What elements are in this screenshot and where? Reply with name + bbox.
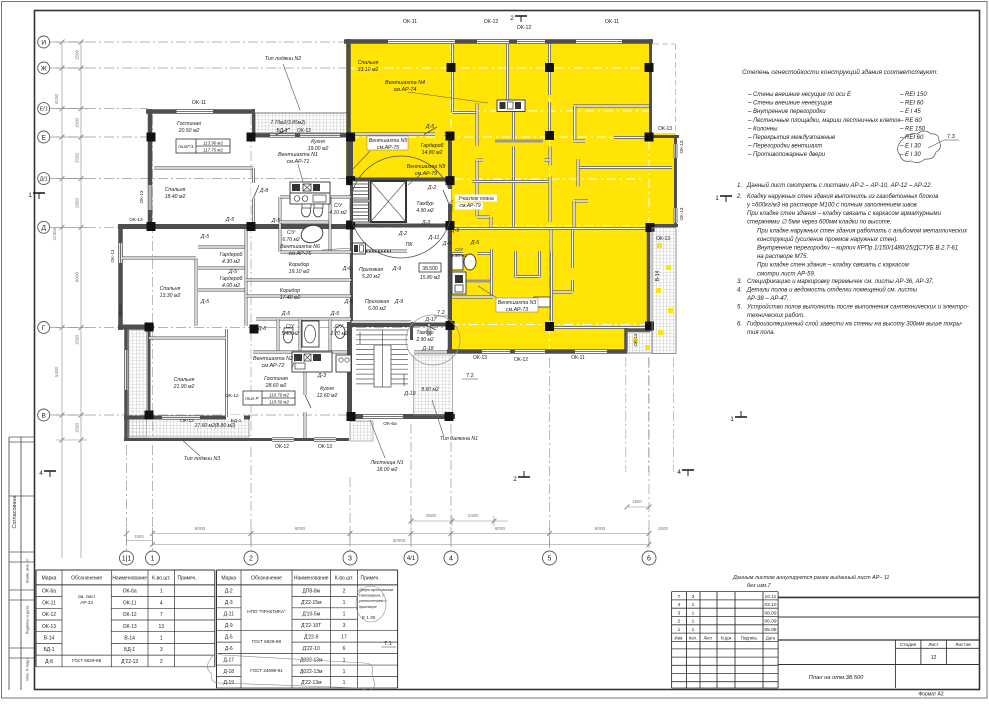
svg-text:ОК-11: ОК-11 [403, 19, 417, 25]
svg-text:6000: 6000 [495, 526, 506, 531]
svg-text:4: 4 [449, 556, 453, 563]
svg-text:Спальня: Спальня [174, 377, 195, 383]
svg-text:7: 7 [160, 612, 163, 618]
svg-text:– E I 30: – E I 30 [899, 152, 921, 158]
svg-text:5.00 м2: 5.00 м2 [368, 306, 386, 312]
svg-text:3: 3 [678, 610, 681, 616]
svg-text:Д-6: Д-6 [344, 299, 353, 305]
svg-text:28.60 м2: 28.60 м2 [265, 383, 287, 389]
svg-text:Примеч.: Примеч. [178, 576, 197, 582]
svg-text:1: 1 [692, 602, 695, 608]
svg-text:АР-38 – АР-47.: АР-38 – АР-47. [746, 296, 789, 302]
svg-text:ОК-12: ОК-12 [118, 303, 123, 316]
svg-text:– Стены внешние несущие по ос: – Стены внешние несущие по оси Е [747, 92, 852, 98]
svg-text:тия пола.: тия пола. [747, 330, 775, 336]
svg-text:С/У: С/У [455, 247, 464, 253]
svg-text:Ж: Ж [41, 65, 47, 72]
svg-text:Участок плана: Участок плана [458, 196, 494, 202]
svg-text:Е 1 30: Е 1 30 [362, 615, 376, 620]
svg-text:Стадия: Стадия [900, 642, 917, 648]
svg-text:БД-1: БД-1 [231, 418, 242, 424]
svg-text:2850: 2850 [75, 197, 80, 208]
svg-text:ОК-13: ОК-13 [679, 207, 684, 220]
svg-text:Спецификацию и маркировку пере: Спецификацию и маркировку перемычек см. … [747, 279, 934, 285]
svg-text:Тип лоджии N2: Тип лоджии N2 [265, 56, 301, 62]
svg-text:4: 4 [160, 600, 163, 606]
svg-text:ОК-6а: ОК-6а [383, 421, 397, 427]
svg-text:6: 6 [343, 646, 346, 652]
svg-text:1500: 1500 [75, 117, 80, 128]
svg-text:2550: 2550 [75, 152, 80, 163]
svg-text:4: 4 [39, 470, 43, 477]
svg-text:Лист: Лист [928, 642, 939, 648]
svg-text:Д-18: Д-18 [421, 346, 433, 352]
svg-text:1: 1 [28, 192, 32, 199]
svg-text:Детали полов и ведомость отдел: Детали полов и ведомость отделки помещен… [746, 287, 918, 294]
svg-text:технических работ.: технических работ. [747, 313, 805, 319]
svg-text:4.10 м2: 4.10 м2 [329, 210, 347, 216]
svg-text:1.: 1. [737, 183, 742, 189]
svg-text:18.00 м2: 18.00 м2 [377, 467, 398, 473]
svg-text:Гардероб: Гардероб [220, 276, 244, 282]
svg-text:Д-11: Д-11 [224, 612, 234, 618]
svg-text:Д'22-15м: Д'22-15м [301, 600, 322, 606]
svg-text:С/У: С/У [286, 324, 295, 330]
svg-text:Данный лист смотреть с листами: Данный лист смотреть с листами АР-2 – АР… [746, 182, 932, 189]
svg-text:– Лестничные площадки, марши л: – Лестничные площадки, марши лестничных … [747, 118, 902, 124]
svg-text:Лестница N1: Лестница N1 [369, 460, 403, 466]
svg-text:Д-5: Д-5 [425, 124, 434, 130]
svg-text:Формат А2: Формат А2 [918, 692, 943, 698]
svg-text:Д-17: Д-17 [424, 317, 437, 323]
svg-text:13.30 м2: 13.30 м2 [160, 293, 181, 299]
svg-text:05.08: 05.08 [764, 627, 776, 633]
svg-text:7.2: 7.2 [466, 373, 474, 379]
svg-text:119.50 м2: 119.50 м2 [269, 400, 289, 405]
svg-text:7.70м2(3.85м2): 7.70м2(3.85м2) [270, 120, 306, 126]
svg-text:см.АР-76: см.АР-76 [289, 251, 312, 257]
svg-text:ОК-11: ОК-11 [571, 355, 585, 361]
svg-text:ДП8-8м: ДП8-8м [302, 589, 320, 595]
svg-text:Е/1: Е/1 [40, 106, 48, 112]
svg-text:– Перекрытия междуэтажные: – Перекрытия междуэтажные [747, 135, 836, 141]
svg-text:Степень огнестойкости конструк: Степень огнестойкости конструкций здания… [742, 68, 938, 76]
svg-text:1: 1 [692, 610, 695, 616]
svg-text:притворе: притворе [359, 605, 377, 609]
svg-text:08.09: 08.09 [764, 610, 776, 616]
svg-text:ОК-6а: ОК-6а [123, 589, 137, 595]
svg-text:5.20 м2: 5.20 м2 [362, 274, 380, 280]
svg-text:21.90 м2: 21.90 м2 [173, 384, 195, 390]
svg-text:Д-5: Д-5 [330, 311, 339, 317]
svg-text:Взам. инв. N: Взам. инв. N [25, 559, 30, 582]
svg-text:Инв. N подл.: Инв. N подл. [25, 657, 30, 681]
svg-text:уплотнением в: уплотнением в [358, 599, 387, 603]
svg-text:Д/1: Д/1 [40, 176, 48, 182]
svg-text:12: 12 [931, 655, 937, 661]
svg-text:ОК-12: ОК-12 [180, 418, 194, 424]
svg-text:6.70 м2: 6.70 м2 [282, 237, 300, 243]
svg-text:ОК-12: ОК-12 [42, 612, 56, 618]
svg-text:Обозначение: Обозначение [251, 576, 282, 582]
svg-text:03.10: 03.10 [764, 602, 776, 608]
svg-text:Наименование: Наименование [112, 576, 147, 582]
svg-text:Д-2: Д-2 [398, 231, 407, 237]
svg-text:Прихожая: Прихожая [359, 267, 383, 273]
svg-text:7.3: 7.3 [947, 134, 955, 140]
svg-text:1: 1 [343, 612, 346, 618]
svg-text:Гостиная: Гостиная [264, 376, 288, 382]
svg-text:При кладке наружных стен здани: При кладке наружных стен здания работать… [757, 229, 968, 235]
svg-text:5400: 5400 [54, 366, 59, 377]
svg-text:– Стены внешние ненесущие: – Стены внешние ненесущие [747, 101, 833, 107]
svg-text:ОК-11: ОК-11 [605, 19, 619, 25]
svg-text:Коридор: Коридор [289, 262, 309, 268]
svg-text:При кладке стен здания – кла: При кладке стен здания – кладку связать … [747, 211, 942, 217]
svg-text:Кухня: Кухня [311, 139, 325, 145]
svg-text:БД-1: БД-1 [124, 647, 135, 653]
svg-text:Гардероб: Гардероб [421, 143, 445, 149]
svg-text:1500: 1500 [134, 534, 144, 539]
svg-text:ОК-12: ОК-12 [123, 612, 137, 618]
svg-text:Наименование: Наименование [294, 576, 329, 582]
svg-text:2: 2 [513, 476, 517, 483]
svg-text:Лист: Лист [703, 636, 712, 641]
svg-text:ОК-11: ОК-11 [123, 600, 137, 606]
svg-text:ОК-12: ОК-12 [275, 444, 289, 450]
svg-text:НПО "ПРАКТИКА": НПО "ПРАКТИКА" [247, 609, 286, 614]
svg-text:3600: 3600 [426, 513, 437, 518]
svg-text:ОК-12: ОК-12 [297, 128, 311, 134]
svg-text:3: 3 [348, 556, 352, 563]
svg-text:Д-3: Д-3 [317, 373, 326, 379]
svg-text:33.10 м2: 33.10 м2 [358, 67, 379, 73]
svg-text:Листов: Листов [955, 642, 971, 648]
svg-text:см.АР-74: см.АР-74 [394, 87, 417, 93]
svg-text:Данным листом аннулируется ран: Данным листом аннулируется ранее выданны… [732, 574, 889, 581]
svg-text:смотри лист АР-59.: смотри лист АР-59. [757, 271, 815, 277]
svg-text:Д-2: Д-2 [427, 185, 436, 191]
svg-text:6000: 6000 [295, 526, 306, 531]
svg-text:ОК-12: ОК-12 [517, 25, 532, 31]
svg-text:Тип лоджии N3: Тип лоджии N3 [184, 456, 220, 462]
svg-text:Д022-13м: Д022-13м [300, 669, 323, 675]
svg-text:7.2: 7.2 [437, 310, 445, 316]
svg-text:– E I 45: – E I 45 [899, 109, 921, 115]
svg-text:2400: 2400 [468, 513, 479, 518]
svg-text:стержнями ∅ 5мм через 600мм: стержнями ∅ 5мм через 600мм кладки по вы… [747, 219, 892, 226]
svg-text:Д-8: Д-8 [259, 188, 268, 194]
svg-text:5.40 м2: 5.40 м2 [281, 331, 299, 337]
svg-text:ОК-13: ОК-13 [318, 444, 332, 450]
svg-text:Д-2: Д-2 [225, 589, 233, 595]
svg-text:Гидроизоляционный слой завести: Гидроизоляционный слой завести на стены … [747, 321, 963, 328]
svg-text:1500: 1500 [75, 422, 80, 433]
svg-text:6000: 6000 [195, 526, 206, 531]
svg-text:ОК-13: ОК-13 [110, 249, 115, 262]
svg-text:ОК-13: ОК-13 [658, 126, 672, 132]
svg-text:ОК-13: ОК-13 [139, 190, 144, 203]
svg-text:Подпись и дата: Подпись и дата [25, 605, 30, 635]
svg-text:1: 1 [151, 556, 155, 563]
svg-text:2: 2 [678, 619, 681, 625]
svg-text:2: 2 [249, 556, 253, 563]
svg-text:– Перегородки вентшахт: – Перегородки вентшахт [747, 144, 822, 150]
svg-text:1500: 1500 [75, 334, 80, 345]
svg-text:типГ/1: типГ/1 [178, 144, 194, 149]
svg-text:10.11: 10.11 [765, 594, 777, 600]
svg-text:АР-32: АР-32 [80, 600, 93, 605]
svg-text:Вентшахта N5: Вентшахта N5 [369, 138, 408, 144]
svg-text:ОК-13: ОК-13 [656, 236, 670, 242]
svg-text:18.40 м2: 18.40 м2 [165, 194, 186, 200]
svg-text:1500: 1500 [658, 526, 669, 531]
svg-text:ОК-13: ОК-13 [473, 355, 487, 361]
svg-text:4200: 4200 [54, 93, 59, 104]
svg-text:Д'22-10: Д'22-10 [303, 646, 320, 652]
svg-text:С/У: С/У [335, 324, 344, 330]
svg-text:ОК-13: ОК-13 [633, 333, 638, 346]
svg-text:110.70 м2: 110.70 м2 [269, 393, 289, 398]
svg-text:γ =600кг/м3 на растворе М100 с: γ =600кг/м3 на растворе М100 с полным за… [747, 203, 917, 209]
svg-text:Д: Д [41, 225, 46, 232]
svg-text:3: 3 [343, 623, 346, 629]
svg-text:17.40 м2: 17.40 м2 [280, 295, 301, 301]
svg-text:Тамбур: Тамбур [416, 201, 433, 207]
svg-text:см. лист: см. лист [78, 594, 97, 599]
svg-text:Д'22-13м: Д'22-13м [301, 680, 322, 686]
svg-text:Д-6: Д-6 [225, 646, 233, 652]
svg-text:Прихожая: Прихожая [365, 299, 389, 305]
svg-text:Д-9: Д-9 [225, 623, 233, 629]
svg-text:1: 1 [343, 669, 346, 675]
svg-text:1500: 1500 [632, 499, 642, 504]
svg-text:Вентшахта N4: Вентшахта N4 [385, 80, 425, 86]
svg-text:Вентшахта N9: Вентшахта N9 [407, 164, 446, 170]
svg-text:ПК: ПК [406, 242, 414, 248]
svg-text:см.АР-75: см.АР-75 [377, 145, 399, 151]
svg-text:19.10 м2: 19.10 м2 [289, 269, 310, 275]
svg-text:5.: 5. [737, 305, 742, 311]
svg-text:Д-8: Д-8 [45, 659, 53, 665]
svg-text:Согласована: Согласована [12, 495, 18, 529]
svg-text:ОК-12: ОК-12 [225, 393, 239, 399]
svg-text:3: 3 [692, 594, 695, 600]
svg-text:Изм.: Изм. [675, 636, 684, 641]
svg-text:1: 1 [730, 416, 734, 423]
svg-text:4/1: 4/1 [407, 556, 416, 562]
svg-text:Д-5: Д-5 [200, 234, 209, 240]
svg-text:см.АР-71: см.АР-71 [287, 159, 310, 165]
svg-text:Спальня: Спальня [165, 187, 186, 193]
svg-text:на растворе М75.: на растворе М75. [757, 254, 808, 260]
svg-text:см.АР-79: см.АР-79 [415, 171, 437, 177]
svg-text:3: 3 [160, 647, 163, 653]
svg-text:2.70 м2: 2.70 м2 [329, 331, 348, 337]
svg-text:БД-1: БД-1 [276, 128, 287, 134]
svg-text:Д-9: Д-9 [394, 299, 403, 305]
svg-text:6: 6 [647, 556, 651, 563]
svg-text:3.30 м2: 3.30 м2 [451, 253, 468, 259]
svg-text:Марка: Марка [221, 576, 236, 582]
svg-text:8.60 м2: 8.60 м2 [421, 387, 439, 393]
svg-text:N док: N док [721, 636, 732, 641]
svg-text:6000: 6000 [75, 271, 80, 282]
svg-text:4.00 м2: 4.00 м2 [222, 283, 240, 289]
svg-text:113.90 м2: 113.90 м2 [203, 141, 223, 146]
svg-text:Д-9: Д-9 [442, 241, 451, 247]
svg-text:Внутренние перегородки – ки: Внутренние перегородки – кирпич КРПр 1/1… [757, 246, 958, 252]
svg-text:– E I 30: – E I 30 [899, 144, 921, 150]
svg-text:К-во.шт.: К-во.шт. [152, 576, 170, 582]
svg-text:Тип балкона N1: Тип балкона N1 [440, 436, 478, 442]
svg-text:Вентшахта N3: Вентшахта N3 [498, 300, 537, 306]
svg-text:см.АР-72: см.АР-72 [262, 363, 285, 369]
svg-text:2.: 2. [736, 194, 742, 200]
svg-text:К-во.шт.: К-во.шт. [335, 576, 353, 582]
svg-text:4: 4 [678, 602, 681, 608]
svg-text:06.09: 06.09 [764, 619, 776, 625]
svg-text:Кол.: Кол. [689, 636, 697, 641]
svg-text:13: 13 [158, 624, 164, 630]
svg-text:1: 1 [343, 680, 346, 686]
svg-text:В-14: В-14 [124, 636, 135, 642]
svg-text:– REI 150: – REI 150 [899, 92, 927, 98]
svg-text:С/У: С/У [334, 203, 343, 209]
svg-text:Г: Г [42, 325, 46, 332]
svg-text:Д'10-5м: Д'10-5м [302, 612, 320, 618]
svg-text:В-14: В-14 [44, 636, 55, 642]
svg-text:Д-18: Д-18 [223, 669, 234, 675]
svg-text:Примеч.: Примеч. [361, 576, 380, 582]
svg-text:Е: Е [42, 134, 47, 141]
svg-text:1: 1 [692, 627, 695, 633]
svg-text:ОК-12: ОК-12 [514, 357, 528, 363]
svg-text:1: 1 [343, 600, 346, 606]
svg-text:Д-5: Д-5 [271, 218, 280, 224]
svg-text:Д-3: Д-3 [225, 600, 233, 606]
svg-text:Гостиная: Гостиная [177, 121, 201, 127]
svg-text:22350: 22350 [52, 227, 57, 240]
svg-text:И: И [41, 39, 46, 46]
svg-text:Тамбур: Тамбур [416, 330, 433, 336]
svg-text:7: 7 [678, 594, 681, 600]
svg-text:ОК-13: ОК-13 [42, 624, 56, 630]
svg-text:3.: 3. [737, 279, 742, 285]
svg-text:Кухня: Кухня [320, 386, 334, 392]
svg-text:ОК-12: ОК-12 [484, 19, 499, 25]
svg-text:Гардероб: Гардероб [220, 252, 244, 258]
svg-text:4.30 м2: 4.30 м2 [222, 259, 240, 265]
svg-text:тип Р: тип Р [245, 396, 259, 401]
svg-text:117.75 м2: 117.75 м2 [203, 148, 223, 153]
svg-text:Д-3: Д-3 [421, 220, 430, 226]
svg-text:Д'22-10Т: Д'22-10Т [301, 623, 321, 629]
svg-text:конструкций (усиление проемов: конструкций (усиление проемов наружных с… [757, 236, 898, 243]
svg-text:Д-5: Д-5 [225, 634, 233, 640]
svg-text:– Внутренние перегородки: – Внутренние перегородки [747, 109, 826, 115]
svg-text:ОК-11: ОК-11 [42, 600, 56, 606]
svg-text:– REI 60: – REI 60 [899, 135, 924, 141]
svg-text:– Противопожарные двери: – Противопожарные двери [747, 152, 826, 158]
svg-text:– Колонны: – Колонны [747, 126, 778, 132]
svg-text:Д-17: Д-17 [223, 657, 234, 663]
svg-text:14.80 м2: 14.80 м2 [422, 150, 443, 156]
svg-text:1: 1 [160, 636, 163, 642]
svg-text:Д-11: Д-11 [428, 235, 440, 241]
svg-text:1: 1 [692, 619, 695, 625]
svg-text:17: 17 [341, 634, 347, 640]
svg-text:Спальня: Спальня [160, 286, 181, 292]
svg-text:Вентшахта N2: Вентшахта N2 [253, 356, 293, 362]
svg-text:План на отм.38.500: План на отм.38.500 [809, 675, 865, 681]
svg-text:ОК-13: ОК-13 [679, 140, 684, 153]
svg-text:Д-6: Д-6 [342, 266, 351, 272]
svg-text:Д-5: Д-5 [281, 311, 290, 317]
svg-text:4.90 м2: 4.90 м2 [416, 208, 434, 214]
svg-text:17.60 м2(8.80 м2): 17.60 м2(8.80 м2) [195, 423, 236, 429]
svg-text:БД-1: БД-1 [43, 647, 54, 653]
svg-text:Коридор: Коридор [280, 288, 300, 294]
svg-text:38.500: 38.500 [422, 266, 438, 272]
svg-text:Спальня: Спальня [358, 60, 379, 66]
svg-text:1: 1 [343, 657, 346, 663]
svg-text:Кладку наружных стен здания вы: Кладку наружных стен здания выполнить из… [747, 194, 938, 200]
svg-text:2: 2 [160, 659, 163, 665]
svg-text:Д-9: Д-9 [450, 228, 459, 234]
svg-text:Д'22-9: Д'22-9 [304, 634, 319, 640]
svg-text:30000: 30000 [393, 538, 406, 543]
svg-text:ОК-13: ОК-13 [129, 217, 143, 223]
svg-text:4: 4 [677, 469, 681, 476]
svg-text:Обозначение: Обозначение [71, 576, 102, 582]
svg-text:Дата: Дата [766, 636, 776, 641]
svg-text:– RE 60: – RE 60 [899, 118, 922, 124]
svg-text:6.: 6. [737, 322, 742, 328]
svg-text:без изм.7: без изм.7 [747, 583, 772, 589]
svg-text:ГОсТ 6629-88: ГОсТ 6629-88 [72, 658, 101, 663]
svg-text:12.60 м2: 12.60 м2 [317, 393, 338, 399]
svg-text:4.: 4. [737, 288, 742, 294]
svg-text:Д-5: Д-5 [228, 269, 237, 275]
svg-text:Д-5: Д-5 [470, 240, 479, 246]
svg-text:1|1: 1|1 [122, 556, 132, 563]
svg-text:Д-5: Д-5 [225, 217, 234, 223]
svg-text:Подпись: Подпись [741, 636, 758, 641]
svg-text:В-14: В-14 [655, 271, 661, 282]
svg-text:см.АР-79: см.АР-79 [459, 203, 480, 209]
svg-text:Д-5: Д-5 [200, 299, 209, 305]
svg-text:Д'22-13: Д'22-13 [121, 659, 138, 665]
svg-text:2: 2 [343, 589, 346, 595]
svg-text:15.80 м2: 15.80 м2 [420, 275, 440, 281]
svg-text:5: 5 [548, 556, 552, 563]
svg-text:Устройство полов выполнить пос: Устройство полов выполнить после выполне… [746, 304, 969, 311]
svg-text:самозакрыв. с: самозакрыв. с [359, 594, 384, 598]
svg-text:2.90 м2: 2.90 м2 [415, 337, 434, 343]
svg-text:При кладке стен здания – кла: При кладке стен здания – кладку связать … [757, 263, 909, 269]
svg-text:6000: 6000 [595, 526, 606, 531]
svg-text:ГОсТ 6629-88: ГОсТ 6629-88 [252, 639, 281, 644]
svg-text:С/У: С/У [287, 230, 296, 236]
svg-text:см.АР-73: см.АР-73 [506, 307, 528, 313]
svg-text:Вентшахта N1: Вентшахта N1 [278, 152, 318, 158]
svg-text:– REI 60: – REI 60 [899, 101, 924, 107]
svg-text:1: 1 [715, 195, 719, 202]
svg-text:Д-19: Д-19 [403, 391, 415, 397]
svg-text:1: 1 [160, 589, 163, 595]
svg-text:20.50 м2: 20.50 м2 [178, 128, 200, 134]
